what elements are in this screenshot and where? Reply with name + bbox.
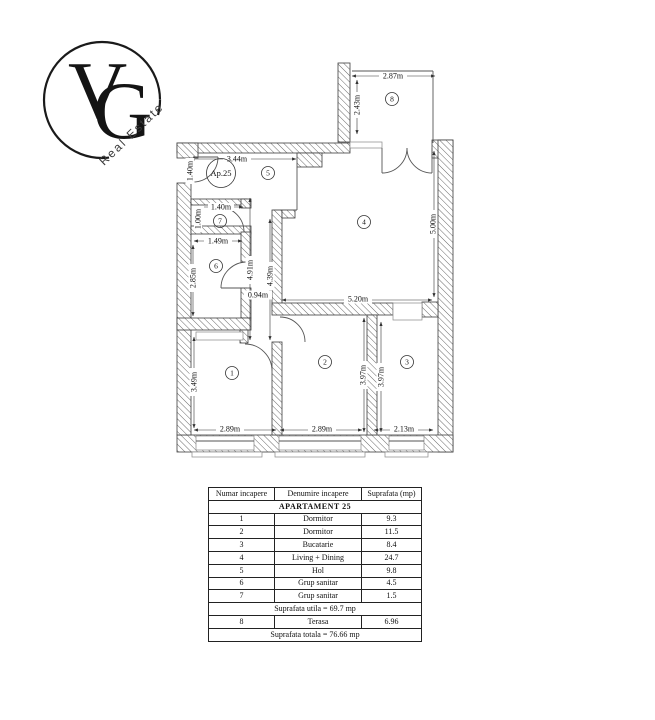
logo: V G Real Estate xyxy=(44,42,167,168)
dim-kitchen-depth: 3.97m xyxy=(377,322,386,432)
svg-text:1.49m: 1.49m xyxy=(208,237,229,246)
dim-hall-width: 0.94m xyxy=(244,291,272,300)
svg-text:3: 3 xyxy=(405,358,409,367)
svg-text:5.20m: 5.20m xyxy=(348,295,369,304)
svg-text:0.94m: 0.94m xyxy=(248,291,269,300)
header-suprafata: Suprafata (mp) xyxy=(362,488,422,501)
dim-kitchen-width: 2.13m xyxy=(374,425,433,434)
dim-terrace-width: 2.87m xyxy=(352,72,435,81)
table-row: 6 Grup sanitar 4.5 xyxy=(209,577,422,590)
table-row: 1 Dormitor 9.3 xyxy=(209,513,422,526)
svg-text:5: 5 xyxy=(266,169,270,178)
svg-text:1.40m: 1.40m xyxy=(186,160,195,181)
svg-text:3.49m: 3.49m xyxy=(190,371,199,392)
table-row: 2 Dormitor 11.5 xyxy=(209,526,422,539)
table-row: 4 Living + Dining 24.7 xyxy=(209,551,422,564)
table-row: 7 Grup sanitar 1.5 xyxy=(209,590,422,603)
room-marker-hol: 5 xyxy=(262,167,275,180)
svg-text:2.89m: 2.89m xyxy=(220,425,241,434)
dim-bedroom2-width: 2.89m xyxy=(280,425,362,434)
terrace-row: 8 Terasa 6.96 xyxy=(209,615,422,628)
svg-text:4.91m: 4.91m xyxy=(246,259,255,280)
room-marker-wc: 6 xyxy=(210,260,223,273)
apartment-group-label: APARTAMENT 25 xyxy=(209,500,422,513)
svg-text:2.89m: 2.89m xyxy=(312,425,333,434)
room-marker-kitchen: 3 xyxy=(401,356,414,369)
dim-entrance-width: 1.40m xyxy=(186,158,195,184)
svg-text:1.40m: 1.40m xyxy=(211,203,232,212)
table-group-row: APARTAMENT 25 xyxy=(209,500,422,513)
dim-bedroom1-width: 2.89m xyxy=(194,425,276,434)
svg-text:5.00m: 5.00m xyxy=(429,213,438,234)
useful-area-row: Suprafata utila = 69.7 mp xyxy=(209,603,422,616)
table-row: 5 Hol 9.8 xyxy=(209,564,422,577)
dimensions: 3.44m 1.40m 2.87m 2.43m 1.40m xyxy=(186,72,438,434)
table-row: 3 Bucatarie 8.4 xyxy=(209,539,422,552)
svg-text:3.97m: 3.97m xyxy=(359,364,368,385)
header-numar: Numar incapere xyxy=(209,488,275,501)
bedroom2-door xyxy=(280,317,305,342)
svg-text:6: 6 xyxy=(214,262,218,271)
useful-area-label: Suprafata utila = 69.7 mp xyxy=(209,603,422,616)
room-marker-living: 4 xyxy=(358,216,371,229)
windows xyxy=(192,436,428,457)
apartment-label: Ap.25 xyxy=(207,159,236,188)
terrace-french-doors xyxy=(382,148,432,173)
svg-text:1: 1 xyxy=(230,369,234,378)
table-header-row: Numar incapere Denumire incapere Suprafa… xyxy=(209,488,422,501)
svg-text:7: 7 xyxy=(218,217,222,226)
svg-text:3.97m: 3.97m xyxy=(377,366,386,387)
dim-bedroom2-depth: 3.97m xyxy=(359,318,368,432)
header-denumire: Denumire incapere xyxy=(275,488,362,501)
room-marker-bedroom2: 2 xyxy=(319,356,332,369)
svg-text:2: 2 xyxy=(323,358,327,367)
svg-text:2.43m: 2.43m xyxy=(353,94,362,115)
dim-living-width: 5.20m xyxy=(282,295,432,304)
svg-text:4.39m: 4.39m xyxy=(266,265,275,286)
svg-text:2.13m: 2.13m xyxy=(394,425,415,434)
dim-terrace-depth: 2.43m xyxy=(353,80,362,134)
svg-text:1.00m: 1.00m xyxy=(194,208,203,229)
svg-text:2.87m: 2.87m xyxy=(383,72,404,81)
walls xyxy=(177,63,453,452)
dim-wc-width: 1.49m xyxy=(194,237,242,246)
area-table: Numar incapere Denumire incapere Suprafa… xyxy=(208,487,421,642)
room-marker-wc-small: 7 xyxy=(214,215,227,228)
total-area-label: Suprafata totala = 76.66 mp xyxy=(209,628,422,641)
wc-door xyxy=(221,262,247,288)
room-marker-terrace: 8 xyxy=(386,93,399,106)
svg-text:4: 4 xyxy=(362,218,366,227)
dim-wc-small-depth: 1.00m xyxy=(194,206,203,232)
room-marker-bedroom1: 1 xyxy=(226,367,239,380)
dim-hol-width: 3.44m xyxy=(191,155,296,164)
svg-text:Ap.25: Ap.25 xyxy=(210,168,231,178)
total-area-row: Suprafata totala = 76.66 mp xyxy=(209,628,422,641)
bedroom1-door xyxy=(245,344,272,371)
svg-text:8: 8 xyxy=(390,95,394,104)
floor-plan: 3.44m 1.40m 2.87m 2.43m 1.40m xyxy=(177,63,453,457)
svg-text:2.85m: 2.85m xyxy=(189,267,198,288)
